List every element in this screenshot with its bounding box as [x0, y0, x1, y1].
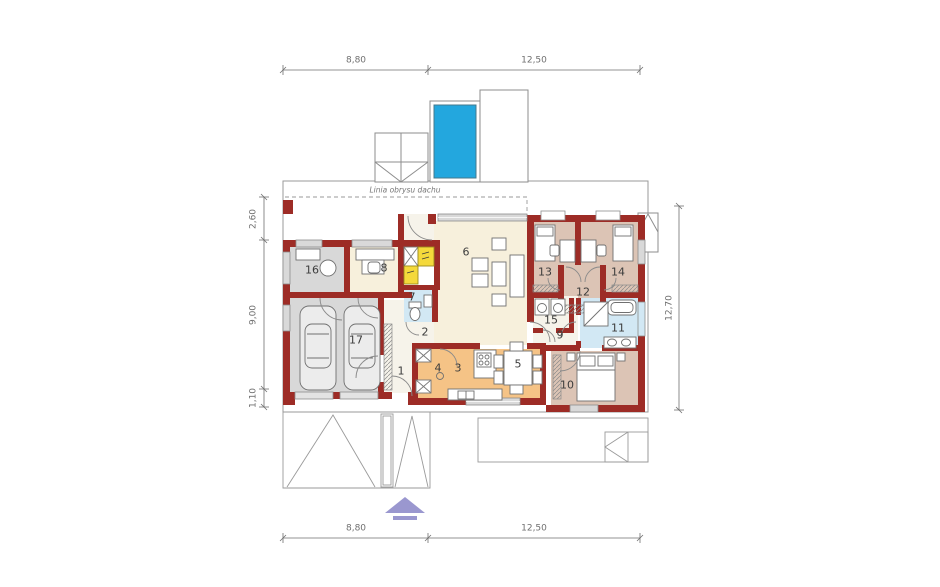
dim-left-2: 9,00	[250, 305, 259, 325]
dimension-right	[674, 203, 684, 413]
dim-bottom-right: 12,50	[521, 525, 547, 534]
room-label-7: 7	[409, 292, 416, 303]
room-label-15: 15	[544, 315, 558, 326]
terrace	[478, 418, 648, 462]
floor-plan-page: Linia obrysu dachu 8,80 12,50 8,80 12,50…	[0, 0, 940, 587]
dim-left-1: 2,60	[250, 209, 259, 229]
dim-bottom-left: 8,80	[346, 525, 366, 534]
dimension-left	[259, 194, 269, 410]
room-label-3: 3	[455, 363, 462, 374]
car-left	[300, 306, 336, 390]
room-label-6: 6	[463, 247, 470, 258]
dim-left-3: 1,10	[250, 388, 259, 408]
room-label-9: 9	[557, 330, 564, 341]
dim-right-1: 12,70	[666, 295, 675, 321]
roof-outline-label: Linia obrysu dachu	[370, 186, 441, 194]
room-label-5: 5	[515, 359, 522, 370]
room-label-13: 13	[538, 267, 552, 278]
room-label-10: 10	[560, 380, 574, 391]
room-label-1: 1	[398, 366, 405, 377]
skylight	[375, 133, 428, 182]
dimension-top	[280, 65, 643, 75]
entrance-arrow-icon	[385, 497, 425, 520]
room-label-2: 2	[422, 327, 429, 338]
pool	[430, 101, 480, 182]
room-label-4: 4	[435, 363, 442, 374]
driveway	[283, 412, 430, 488]
dim-top-left: 8,80	[346, 57, 366, 66]
room-label-11: 11	[611, 323, 625, 334]
dim-top-right: 12,50	[521, 57, 547, 66]
dimension-bottom	[280, 533, 643, 543]
room-label-16: 16	[305, 265, 319, 276]
chimney-block	[480, 90, 528, 182]
floor-plan-canvas	[0, 0, 940, 587]
car-right	[344, 306, 380, 390]
room-label-8: 8	[381, 263, 388, 274]
room-label-17: 17	[349, 335, 363, 346]
room-label-14: 14	[611, 267, 625, 278]
room-label-12: 12	[576, 287, 590, 298]
